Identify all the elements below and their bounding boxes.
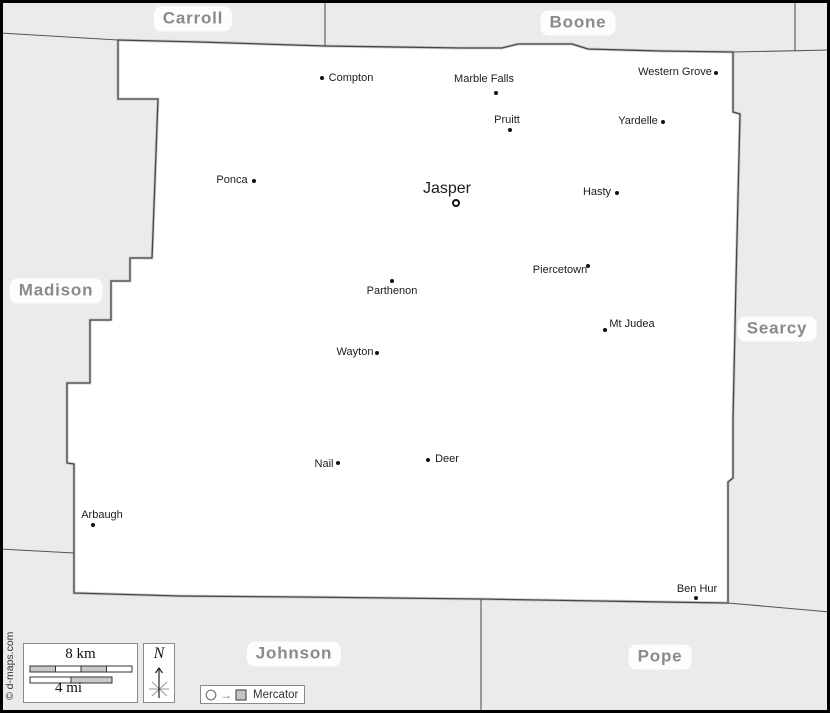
town-label-wayton: Wayton xyxy=(337,346,374,358)
map-boundaries-svg xyxy=(0,0,830,713)
map-canvas: CarrollBooneMadisonSearcyJohnsonPope Com… xyxy=(0,0,830,713)
town-dot-ponca xyxy=(252,179,256,183)
town-dot-western-grove xyxy=(714,71,718,75)
town-label-mt-judea: Mt Judea xyxy=(609,318,654,330)
projection-legend: → Mercator xyxy=(200,685,305,704)
town-dot-hasty xyxy=(615,191,619,195)
projection-name: Mercator xyxy=(250,689,298,701)
town-label-arbaugh: Arbaugh xyxy=(81,509,123,521)
scale-bar: 8 km 4 mi xyxy=(23,643,138,703)
county-label-searcy: Searcy xyxy=(738,317,817,342)
north-arrow: N xyxy=(143,643,175,703)
town-label-ponca: Ponca xyxy=(216,174,247,186)
town-dot-nail xyxy=(336,461,340,465)
town-label-yardelle: Yardelle xyxy=(618,115,658,127)
town-label-compton: Compton xyxy=(329,72,374,84)
county-label-johnson: Johnson xyxy=(247,642,341,667)
town-label-piercetown: Piercetown xyxy=(533,264,587,276)
arrow-right-icon: → xyxy=(220,689,232,701)
town-dot-pruitt xyxy=(508,128,512,132)
town-dot-ben-hur xyxy=(694,596,698,600)
scale-mi-label: 4 mi xyxy=(12,680,125,697)
town-label-nail: Nail xyxy=(315,458,334,470)
town-dot-deer xyxy=(426,458,430,462)
north-arrow-graphic xyxy=(144,644,174,702)
county-label-boone: Boone xyxy=(541,11,616,36)
town-label-pruitt: Pruitt xyxy=(494,114,520,126)
town-label-deer: Deer xyxy=(435,453,459,465)
town-dot-parthenon xyxy=(390,279,394,283)
town-label-marble-falls: Marble Falls xyxy=(454,73,514,85)
copyright-text: © d-maps.com xyxy=(4,632,16,700)
county-label-pope: Pope xyxy=(629,645,692,670)
town-dot-arbaugh xyxy=(91,523,95,527)
town-dot-compton xyxy=(320,76,324,80)
county-label-madison: Madison xyxy=(10,279,103,304)
town-dot-wayton xyxy=(375,351,379,355)
town-label-parthenon: Parthenon xyxy=(367,285,418,297)
town-label-hasty: Hasty xyxy=(583,186,611,198)
county-seat-marker-jasper xyxy=(452,199,460,207)
globe-circle-icon xyxy=(205,689,217,701)
county-label-carroll: Carroll xyxy=(154,7,232,32)
projected-square-icon xyxy=(235,689,247,701)
town-label-western-grove: Western Grove xyxy=(638,66,712,78)
town-label-jasper: Jasper xyxy=(423,180,471,198)
town-dot-yardelle xyxy=(661,120,665,124)
town-label-ben-hur: Ben Hur xyxy=(677,583,717,595)
town-dot-mt-judea xyxy=(603,328,607,332)
town-dot-marble-falls xyxy=(494,91,498,95)
